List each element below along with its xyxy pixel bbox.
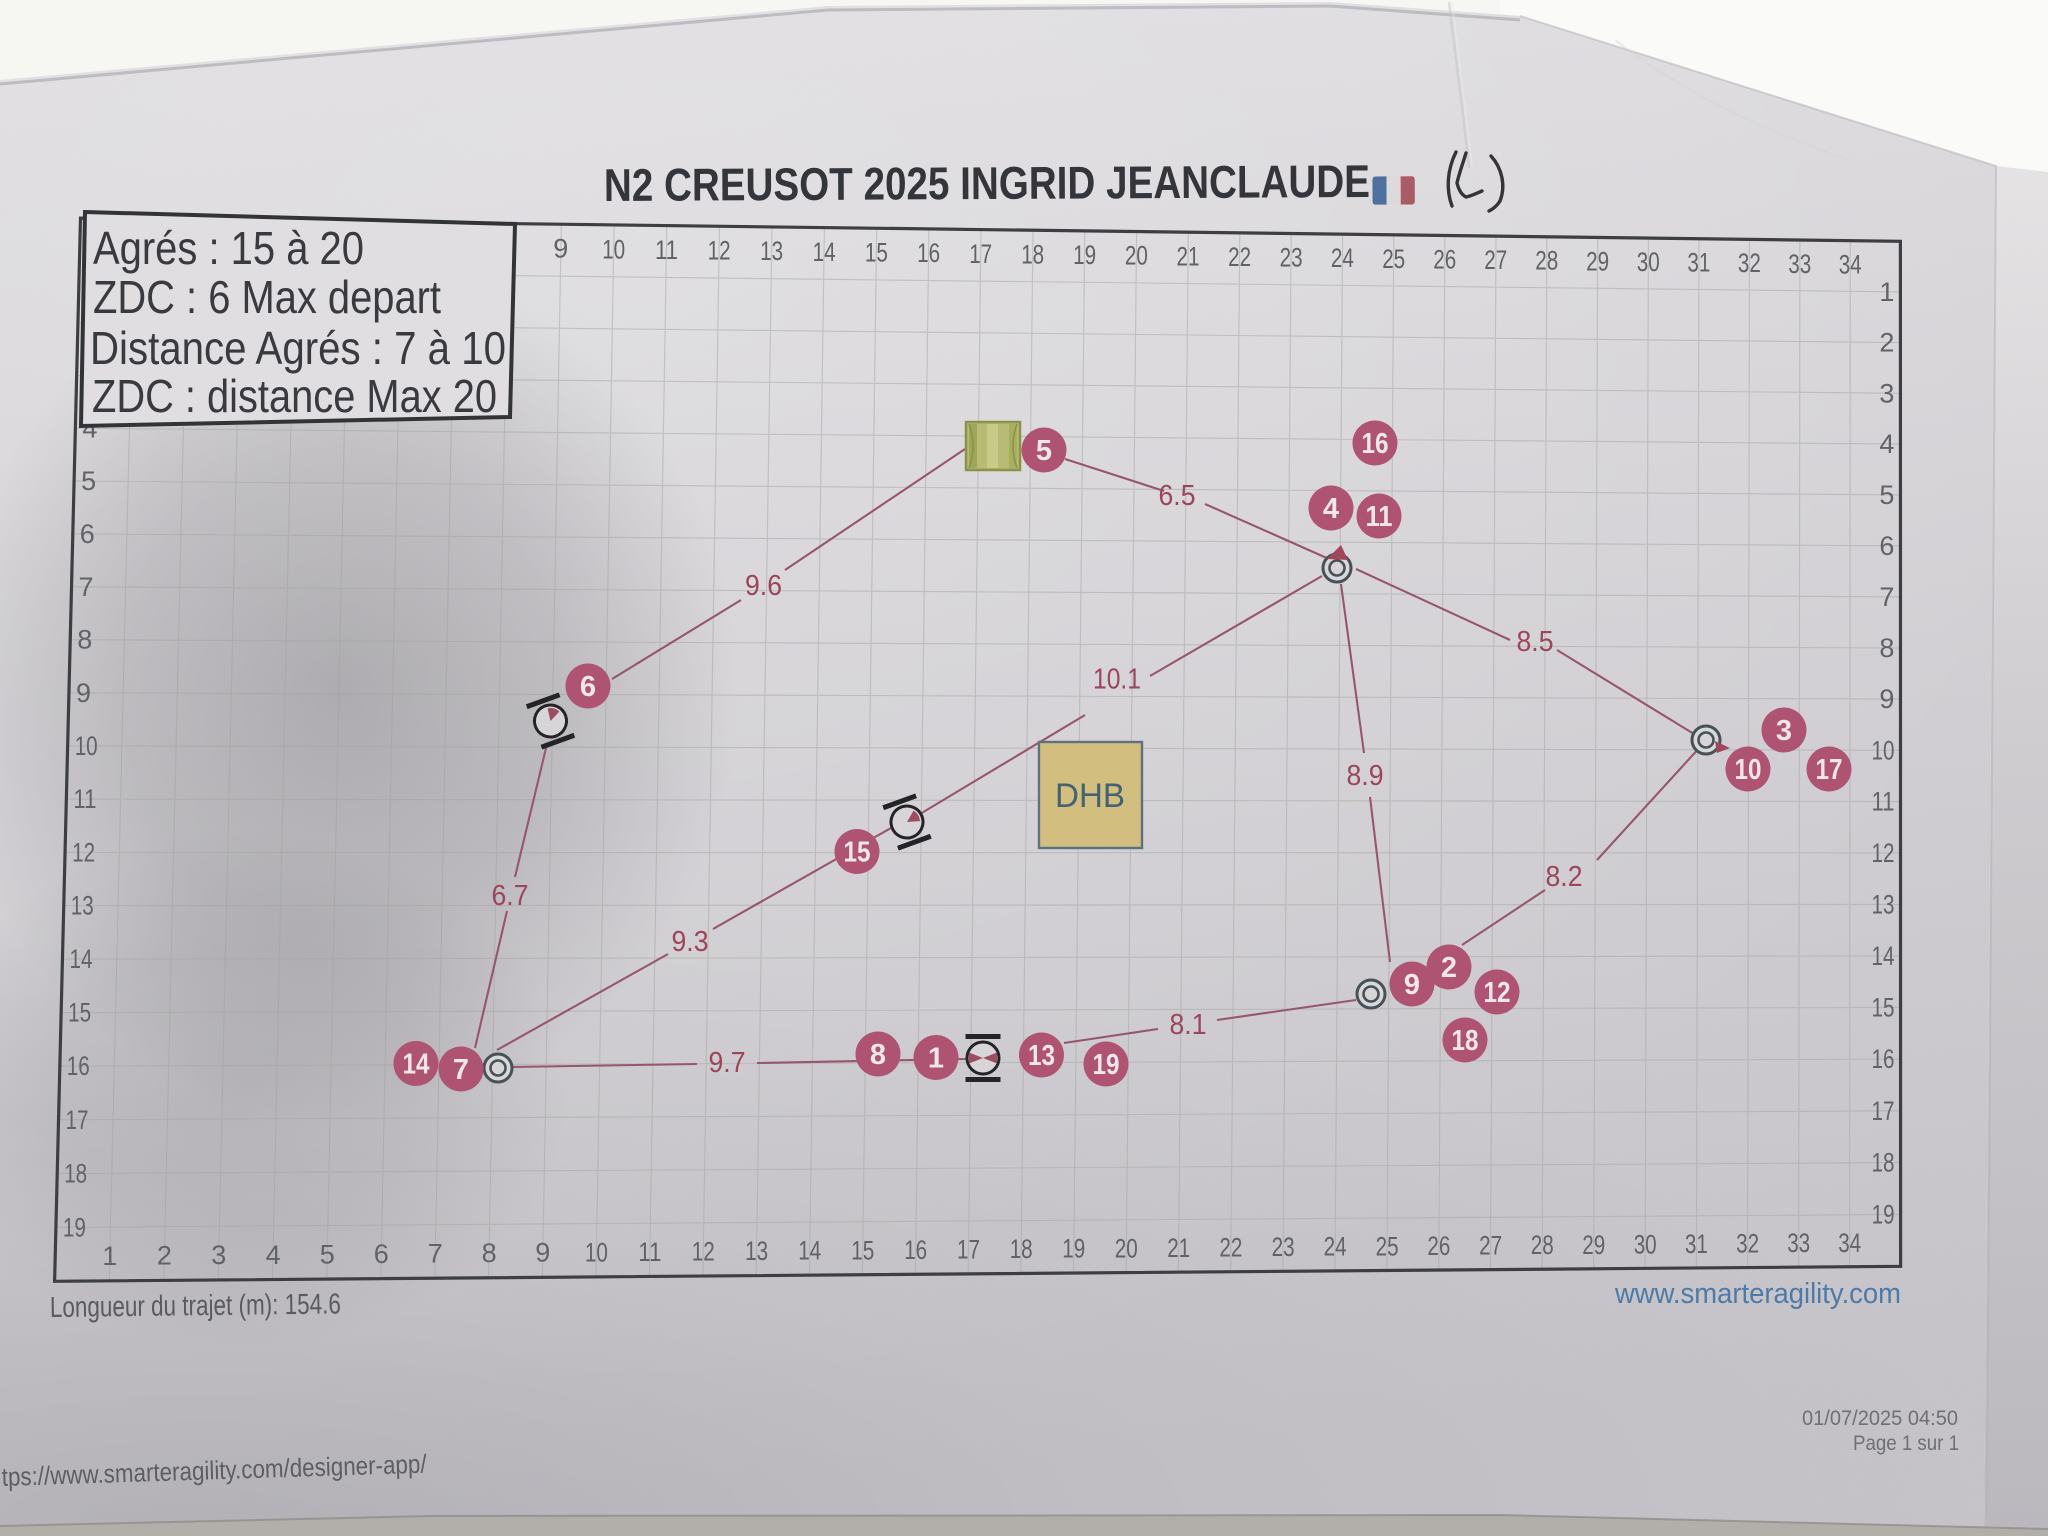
svg-text:Page 1 sur 1: Page 1 sur 1 (1853, 1432, 1959, 1455)
svg-text:www.smarteragility.com: www.smarteragility.com (1614, 1278, 1901, 1310)
svg-text:01/07/2025 04:50: 01/07/2025 04:50 (1802, 1407, 1958, 1430)
svg-text:Longueur du trajet (m): 154.6: Longueur du trajet (m): 154.6 (50, 1288, 341, 1324)
